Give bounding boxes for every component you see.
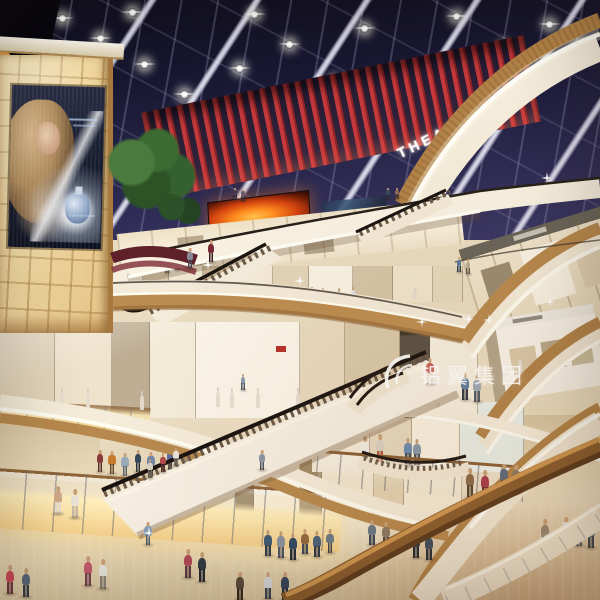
mall-atrium-rendering: THEATRES TAI TAI bbox=[0, 0, 600, 600]
foreground-handrail bbox=[284, 444, 600, 600]
foreground-rail-layer bbox=[0, 0, 600, 600]
